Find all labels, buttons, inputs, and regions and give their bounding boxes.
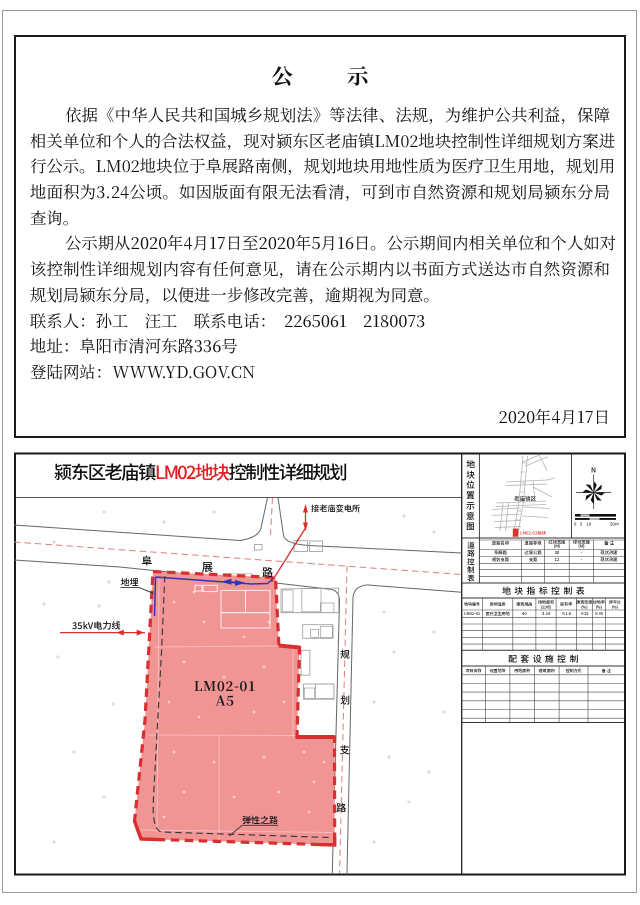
svg-text:老庙镇区: 老庙镇区: [514, 495, 537, 503]
svg-text:-: -: [581, 550, 583, 556]
svg-text:35kV电力线: 35kV电力线: [72, 618, 122, 632]
svg-text:表: 表: [467, 573, 475, 584]
svg-text:颍东区老庙镇LM02地块控制性详细规划: 颍东区老庙镇LM02地块控制性详细规划: [54, 459, 346, 485]
svg-text:弹性之路: 弹性之路: [242, 814, 278, 827]
svg-text:3.24: 3.24: [542, 611, 551, 617]
svg-text:30: 30: [554, 550, 559, 556]
svg-text:项目名称: 项目名称: [465, 668, 482, 674]
svg-text:(%): (%): [595, 604, 602, 610]
svg-text:地埋: 地埋: [120, 576, 139, 589]
svg-text:≥35: ≥35: [595, 611, 604, 617]
svg-text:用地面积: 用地面积: [513, 668, 531, 674]
svg-text:过境公路: 过境公路: [523, 549, 542, 556]
svg-text:地块指标控制表: 地块指标控制表: [502, 584, 588, 597]
svg-text:LM02-01地块: LM02-01地块: [520, 531, 547, 537]
svg-text:支: 支: [339, 742, 350, 757]
svg-text:图: 图: [466, 520, 475, 533]
svg-text:建筑面积: 建筑面积: [538, 668, 556, 674]
svg-text:5: 5: [580, 522, 583, 528]
svg-text:用地性质: 用地性质: [489, 601, 506, 607]
svg-text:(%): (%): [581, 604, 588, 610]
svg-text:支路: 支路: [529, 557, 538, 563]
svg-text:现状改建: 现状改建: [600, 550, 619, 556]
svg-text:设置地块: 设置地块: [489, 668, 506, 674]
svg-text:备 注: 备 注: [603, 541, 614, 547]
svg-text:≤1.6: ≤1.6: [561, 611, 571, 617]
svg-text:划: 划: [340, 692, 350, 707]
svg-text:(M): (M): [578, 544, 585, 550]
svg-text:道路名称: 道路名称: [491, 540, 510, 547]
svg-text:0: 0: [574, 522, 577, 528]
svg-text:阜: 阜: [141, 553, 152, 569]
svg-text:规划支路: 规划支路: [492, 557, 510, 563]
svg-text:(%): (%): [612, 604, 619, 610]
svg-text:50m: 50m: [610, 522, 619, 528]
svg-text:规: 规: [340, 646, 350, 661]
svg-text:≤25: ≤25: [580, 611, 589, 617]
svg-text:容积率: 容积率: [560, 601, 572, 607]
svg-text:建筑限高: 建筑限高: [515, 601, 532, 607]
svg-text:路: 路: [336, 800, 346, 815]
svg-text:现状改建: 现状改建: [600, 557, 619, 563]
svg-text:(公顷): (公顷): [541, 604, 552, 610]
svg-text:(M): (M): [554, 544, 561, 550]
svg-text:-: -: [581, 557, 583, 563]
svg-text:备 注: 备 注: [601, 668, 611, 674]
svg-text:12: 12: [554, 557, 559, 563]
svg-text:接老庙变电所: 接老庙变电所: [311, 503, 360, 515]
svg-text:展: 展: [202, 559, 213, 575]
svg-text:控制方式: 控制方式: [565, 668, 582, 674]
svg-text:LM02-01: LM02-01: [464, 611, 481, 617]
svg-text:N: N: [591, 466, 596, 476]
svg-text:道路等级: 道路等级: [523, 541, 542, 547]
svg-text:路: 路: [262, 564, 273, 580]
svg-text:地块编号: 地块编号: [463, 601, 480, 607]
svg-text:40: 40: [522, 611, 527, 617]
svg-text:阜展路: 阜展路: [494, 550, 508, 556]
svg-text:A5: A5: [215, 690, 235, 710]
svg-text:10: 10: [587, 522, 592, 528]
svg-text:配套设施控制: 配套设施控制: [508, 652, 582, 665]
svg-text:医疗卫生用地: 医疗卫生用地: [486, 611, 510, 617]
